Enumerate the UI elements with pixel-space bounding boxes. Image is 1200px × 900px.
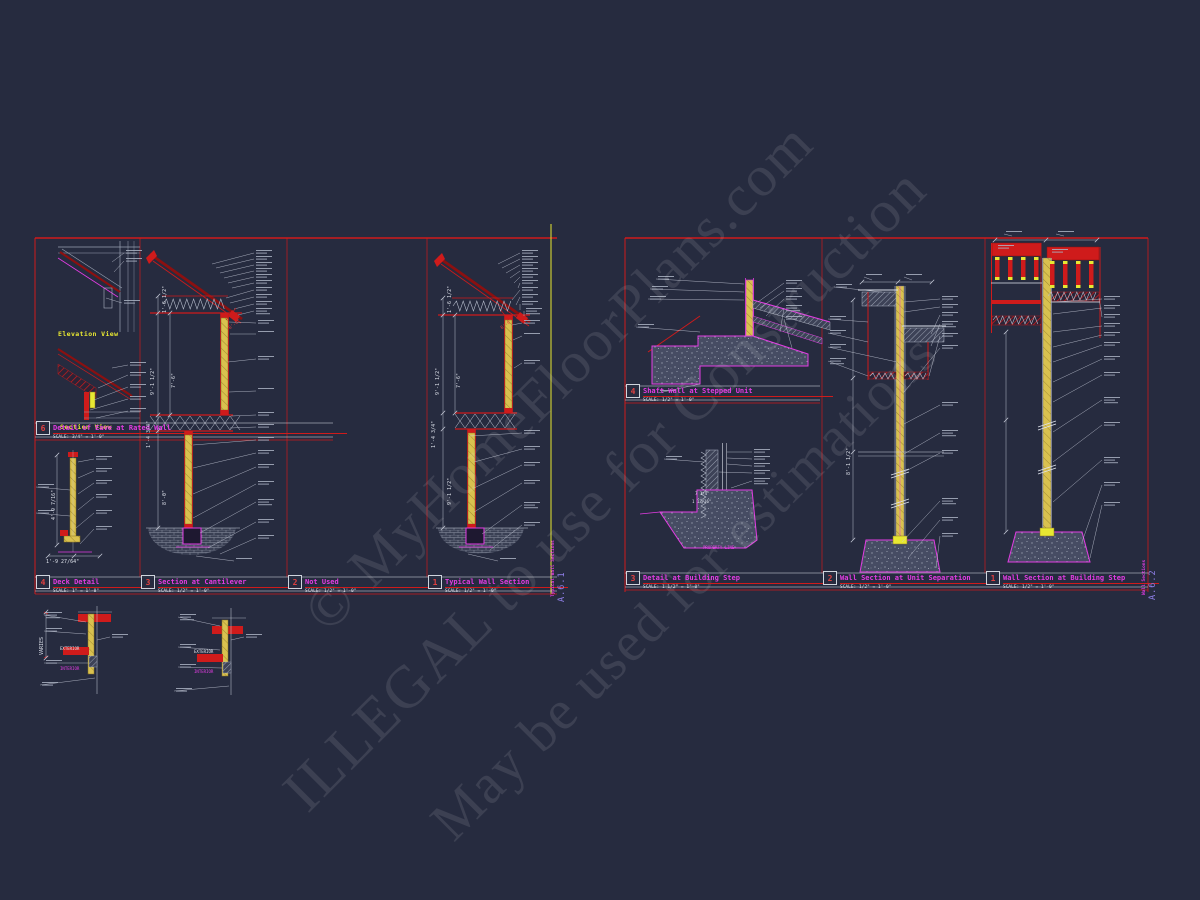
detail-number: 4 <box>626 384 640 398</box>
detail-title: Shaft Wall at Stepped Unit <box>643 387 833 397</box>
elevation-view-label: Elevation View <box>58 330 118 338</box>
title-wall-section-building-step: 1 Wall Section at Building Step SCALE: 1… <box>986 574 1159 590</box>
dim-typical-wall: 9'-1 1/2" <box>435 368 441 395</box>
dim-varies: VARIES <box>39 637 45 655</box>
leader-annotations <box>36 231 1120 692</box>
detail-number: 3 <box>626 571 640 585</box>
title-unit-separation: 2 Wall Section at Unit Separation SCALE:… <box>823 574 996 590</box>
right-sheet-title-vertical: Wall Sections <box>1142 560 1147 595</box>
dim-typical-floor: 1'-4 3/4" <box>431 421 437 448</box>
dim-cantilever-wall: 9'-1 1/2" <box>150 368 156 395</box>
left-sheet-title-vertical: Typical Wall Sections <box>551 540 556 597</box>
title-not-used: 2 Not Used SCALE: 1/2" = 1'-0" <box>288 578 438 594</box>
dim-typical-clear: 7'-6" <box>456 373 462 388</box>
dim-step-a: 7 1/4" <box>695 491 709 496</box>
detail-number: 2 <box>288 575 302 589</box>
detail-title: Not Used <box>305 578 438 588</box>
dim-step-b: 1 13/16" <box>692 499 711 504</box>
detail-number: 1 <box>428 575 442 589</box>
dim-deck-horizontal: 1'-9 27/64" <box>46 559 79 565</box>
detail-number: 6 <box>36 421 50 435</box>
title-eave-detail: 6 Detail of Eave at Rated Wall SCALE: 3/… <box>36 424 347 440</box>
detail-scale: SCALE: 1/2" = 1'-0" <box>445 589 568 594</box>
detail-scale: SCALE: 1" = 1'-0" <box>53 589 153 594</box>
dim-cantilever-clear: 7'-6" <box>171 373 177 388</box>
right-sheet-number: A.6.2 <box>1148 569 1158 600</box>
interior-label-left: INTERIOR <box>60 666 79 671</box>
elevation-view-drawing <box>58 241 140 332</box>
detail-number: 3 <box>141 575 155 589</box>
detail-number: 1 <box>986 571 1000 585</box>
title-deck-detail: 4 Deck Detail SCALE: 1" = 1'-0" <box>36 578 153 594</box>
drawing-canvas: © MyHomeFloorPlans.com ILLEGAL to use fo… <box>0 0 1200 900</box>
title-detail-building-step: 3 Detail at Building Step SCALE: 1 1/2" … <box>626 574 833 590</box>
exterior-label-right: EXTERIOR <box>194 649 213 654</box>
section-view-drawing <box>58 349 140 420</box>
detail-scale: SCALE: 1/2" = 1'-0" <box>840 585 996 590</box>
dim-typical-lower: 9'-1 1/2" <box>447 478 453 505</box>
section-at-cantilever-drawing <box>146 250 242 555</box>
detail-scale: SCALE: 1 1/2" = 1'-0" <box>643 585 833 590</box>
detail-number: 2 <box>823 571 837 585</box>
building-step-section-drawing <box>991 243 1100 562</box>
detail-scale: SCALE: 1/2" = 1'-0" <box>643 398 833 403</box>
exterior-label-left: EXTERIOR <box>60 646 79 651</box>
dim-deck-vertical: 4'-9 7/16" <box>51 490 57 520</box>
detail-scale: SCALE: 1/2" = 1'-0" <box>158 589 298 594</box>
title-section-cantilever: 3 Section at Cantilever SCALE: 1/2" = 1'… <box>141 578 298 594</box>
detail-number: 4 <box>36 575 50 589</box>
detail-title: Detail at Building Step <box>643 574 833 584</box>
detail-title: Detail of Eave at Rated Wall <box>53 424 347 434</box>
dim-cantilever-lower: 8'-0" <box>162 490 168 505</box>
detail-title: Deck Detail <box>53 578 153 588</box>
detail-scale: SCALE: 1/2" = 1'-0" <box>1003 585 1159 590</box>
dim-unit-sep-wall: 8'-1 1/2" <box>846 448 852 475</box>
dim-cantilever-floor: 1'-4 3/4" <box>146 421 152 448</box>
dim-cantilever-top: 1'-6 1/2" <box>162 286 168 313</box>
detail-title: Wall Section at Building Step <box>1003 574 1159 584</box>
detail-title: Section at Cantilever <box>158 578 298 588</box>
property-line-label: PROPERTY LINE <box>703 545 734 550</box>
detail-title: Wall Section at Unit Separation <box>840 574 996 584</box>
left-sheet-number: A.6.1 <box>557 571 567 602</box>
dim-typical-top: 1'-6 1/2" <box>447 286 453 313</box>
title-typical-wall-section: 1 Typical Wall Section SCALE: 1/2" = 1'-… <box>428 578 568 594</box>
title-shaft-wall: 4 Shaft Wall at Stepped Unit SCALE: 1/2"… <box>626 387 833 403</box>
interior-label-right: INTERIOR <box>194 669 213 674</box>
detail-scale: SCALE: 1/2" = 1'-0" <box>305 589 438 594</box>
detail-title: Typical Wall Section <box>445 578 568 588</box>
detail-scale: SCALE: 3/4" = 1'-0" <box>53 435 347 440</box>
